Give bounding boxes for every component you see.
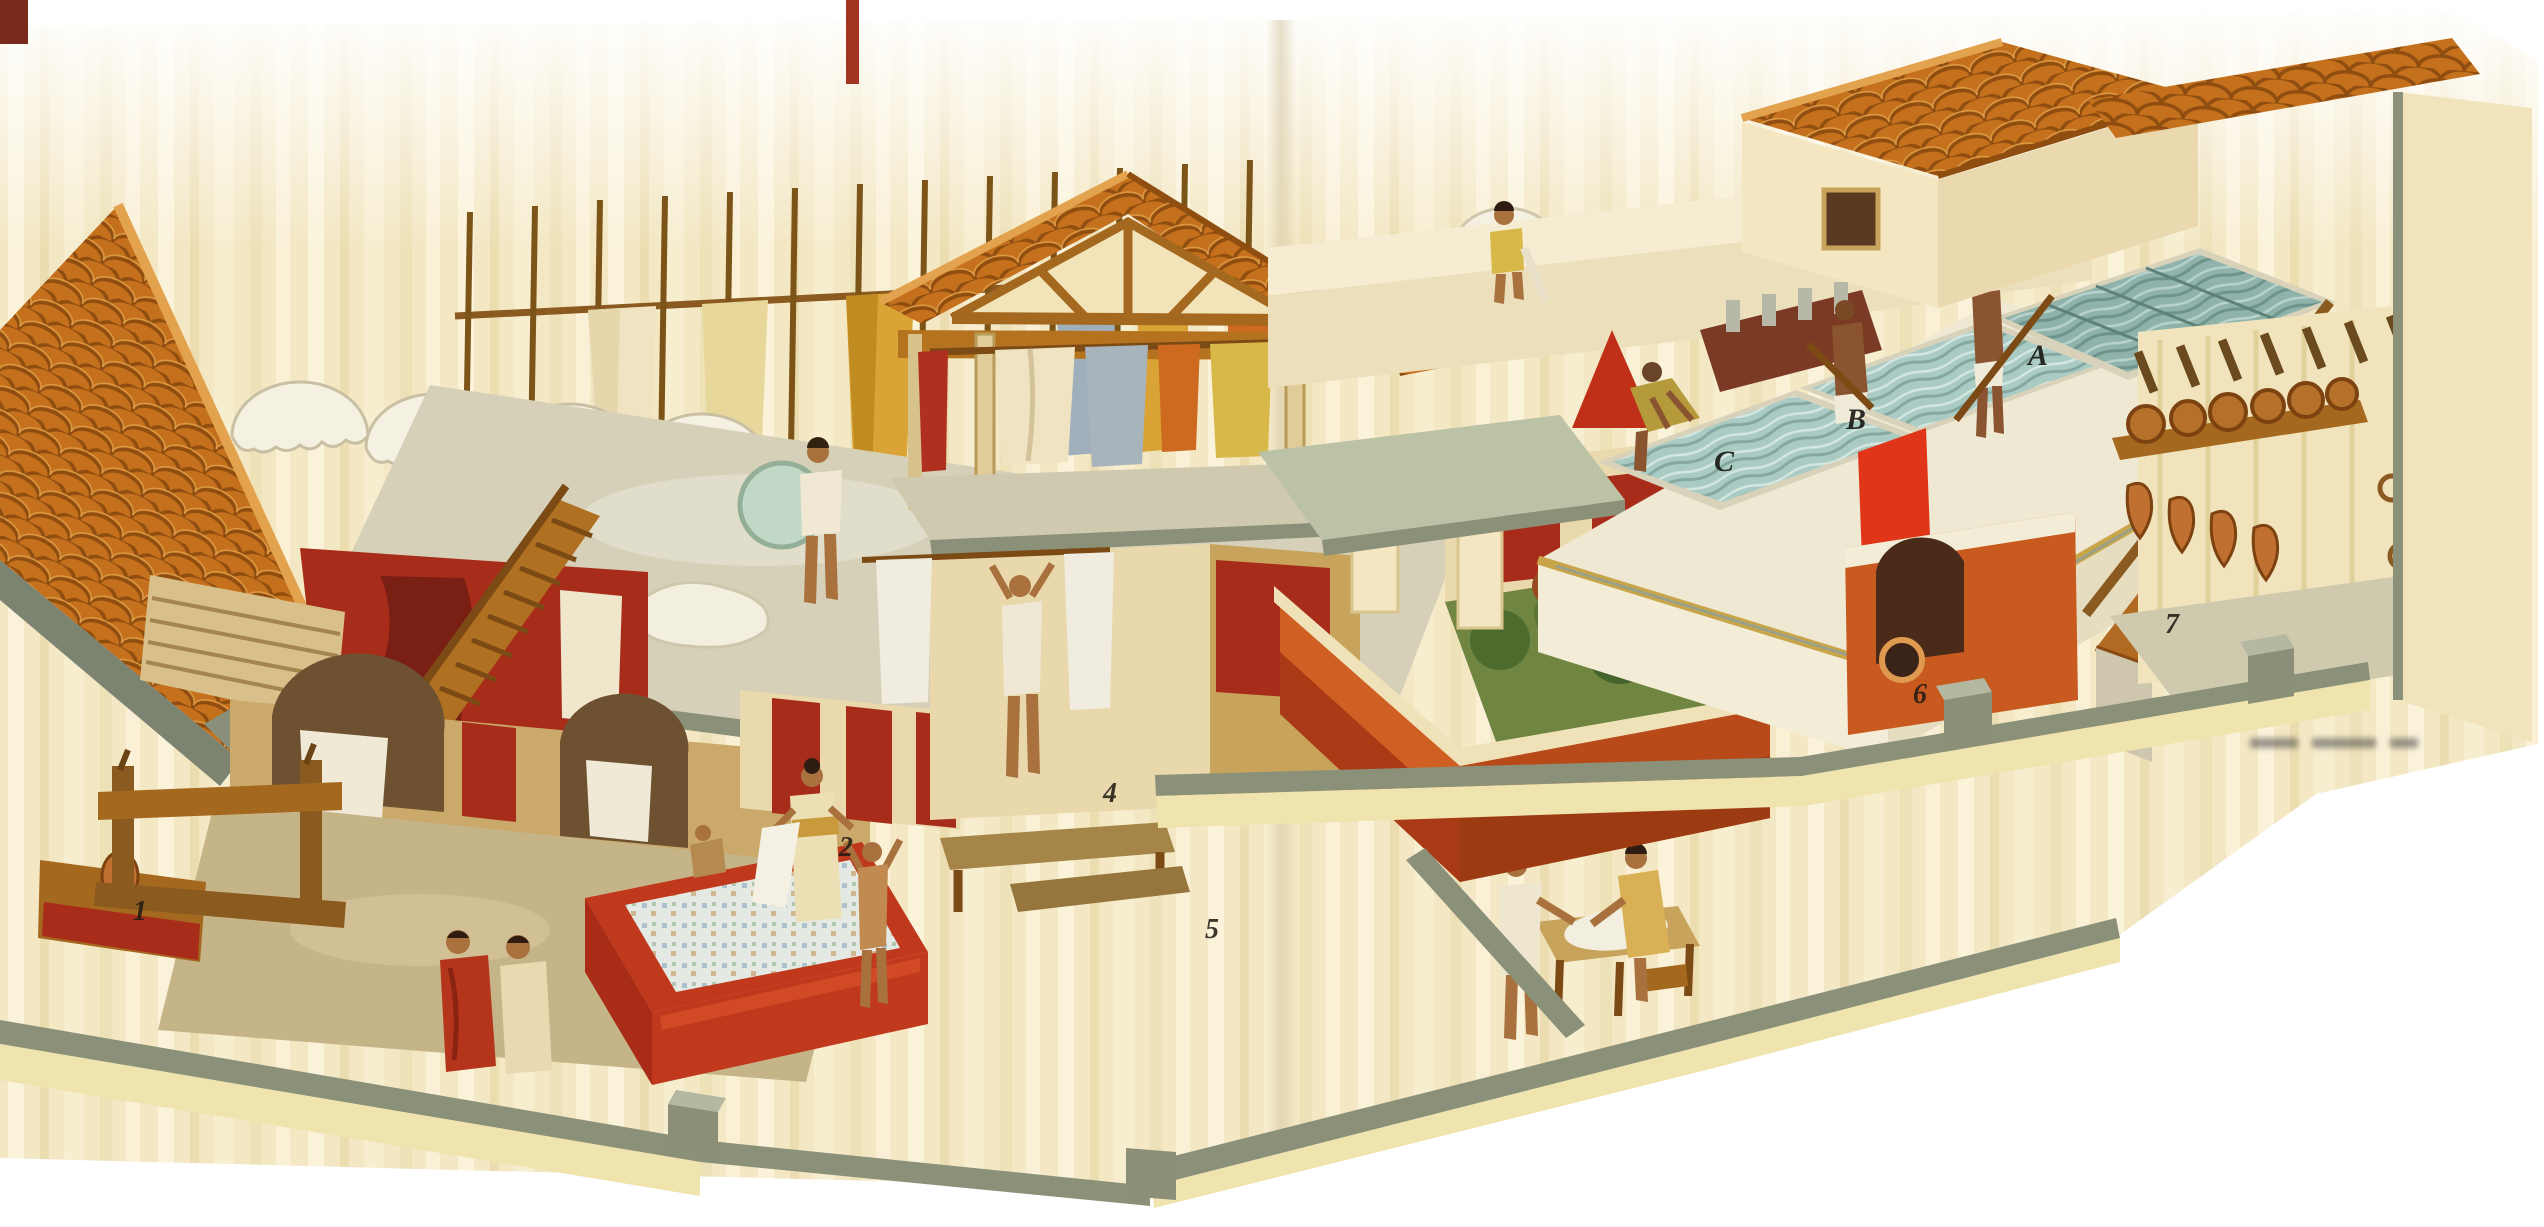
red-pillar: [462, 722, 516, 822]
illustration-canvas: [0, 0, 2544, 1227]
callout-A: A: [2028, 341, 2048, 371]
callout-C: C: [1714, 447, 1734, 477]
right-wall: [2398, 92, 2532, 742]
callout-B: B: [1846, 405, 1866, 435]
callout-5: 5: [1205, 916, 1219, 944]
callout-1: 1: [133, 898, 147, 926]
callout-6: 6: [1913, 681, 1927, 709]
window: [1824, 190, 1878, 248]
fulling-stalls: [740, 690, 960, 830]
porthole: [1882, 640, 1922, 680]
hanging-cloth: [876, 558, 932, 704]
callout-4: 4: [1103, 780, 1117, 808]
callout-2: 2: [839, 834, 853, 862]
arch-cloth: [586, 760, 652, 842]
hanging-cloth: [1064, 552, 1114, 710]
fullonica-cutaway-illustration: 1 2 4 5 6 7 A B C: [0, 0, 2544, 1227]
corner-roof-fragment: [0, 0, 28, 44]
pole-fragment: [846, 0, 859, 84]
callout-7: 7: [2165, 611, 2179, 639]
cropped-caption-fragment: [2250, 738, 2432, 756]
